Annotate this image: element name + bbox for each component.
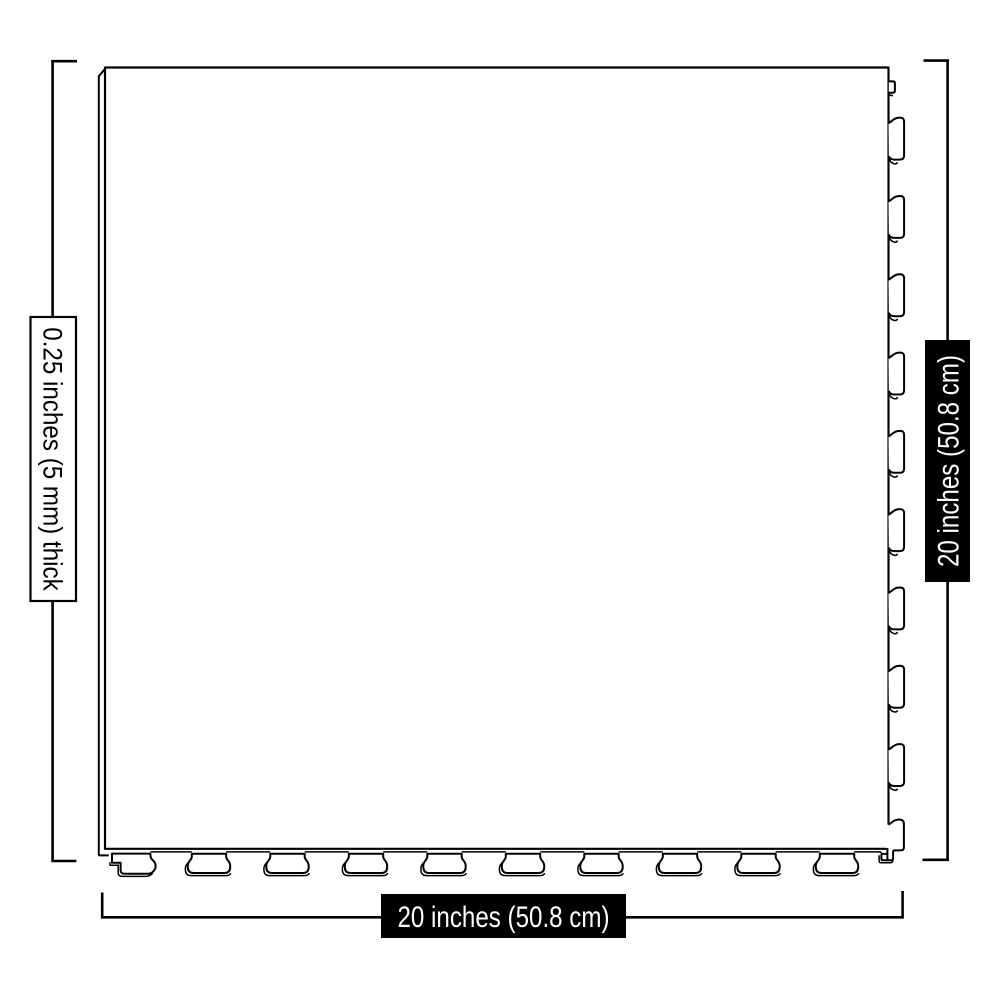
svg-text:20 inches (50.8 cm): 20 inches (50.8 cm) — [398, 901, 610, 934]
svg-text:0.25 inches (5 mm) thick: 0.25 inches (5 mm) thick — [37, 327, 67, 591]
svg-text:20 inches (50.8 cm): 20 inches (50.8 cm) — [933, 355, 966, 567]
